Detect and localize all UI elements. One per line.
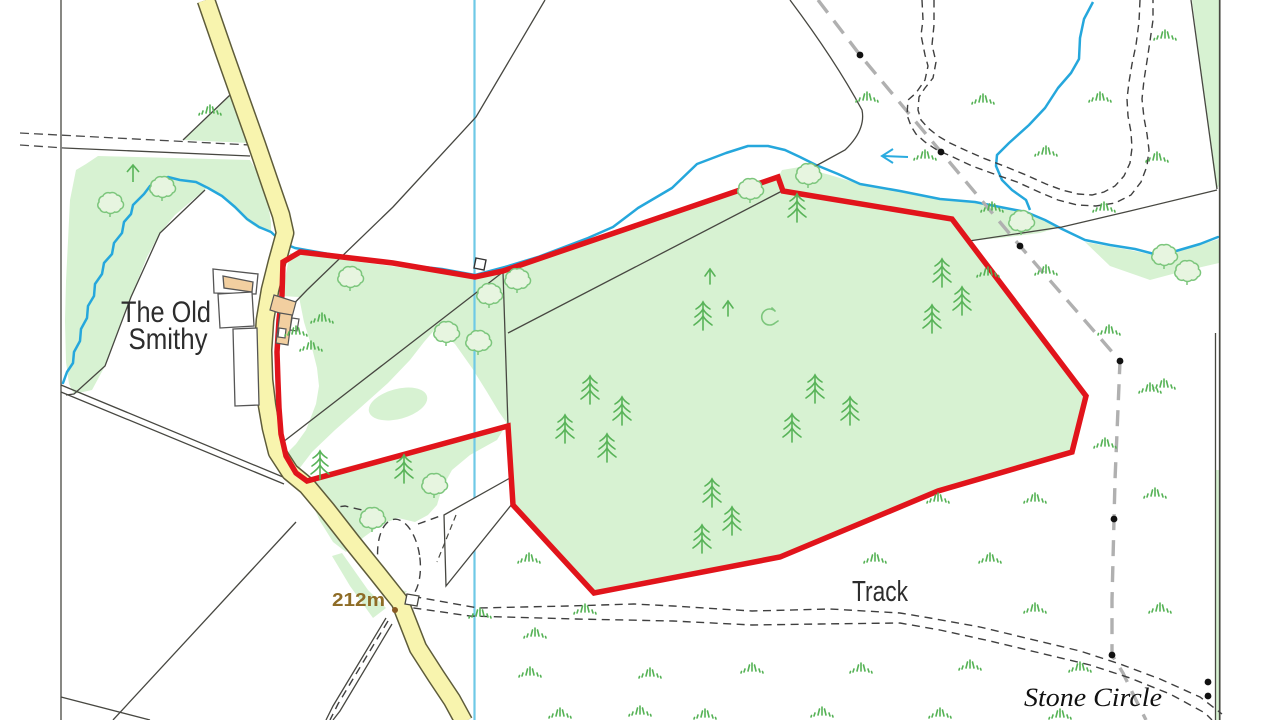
svg-text:Stone Circle: Stone Circle xyxy=(1024,683,1162,712)
svg-text:Track: Track xyxy=(852,576,908,608)
svg-text:212m: 212m xyxy=(332,590,385,610)
svg-text:Smithy: Smithy xyxy=(129,323,208,356)
